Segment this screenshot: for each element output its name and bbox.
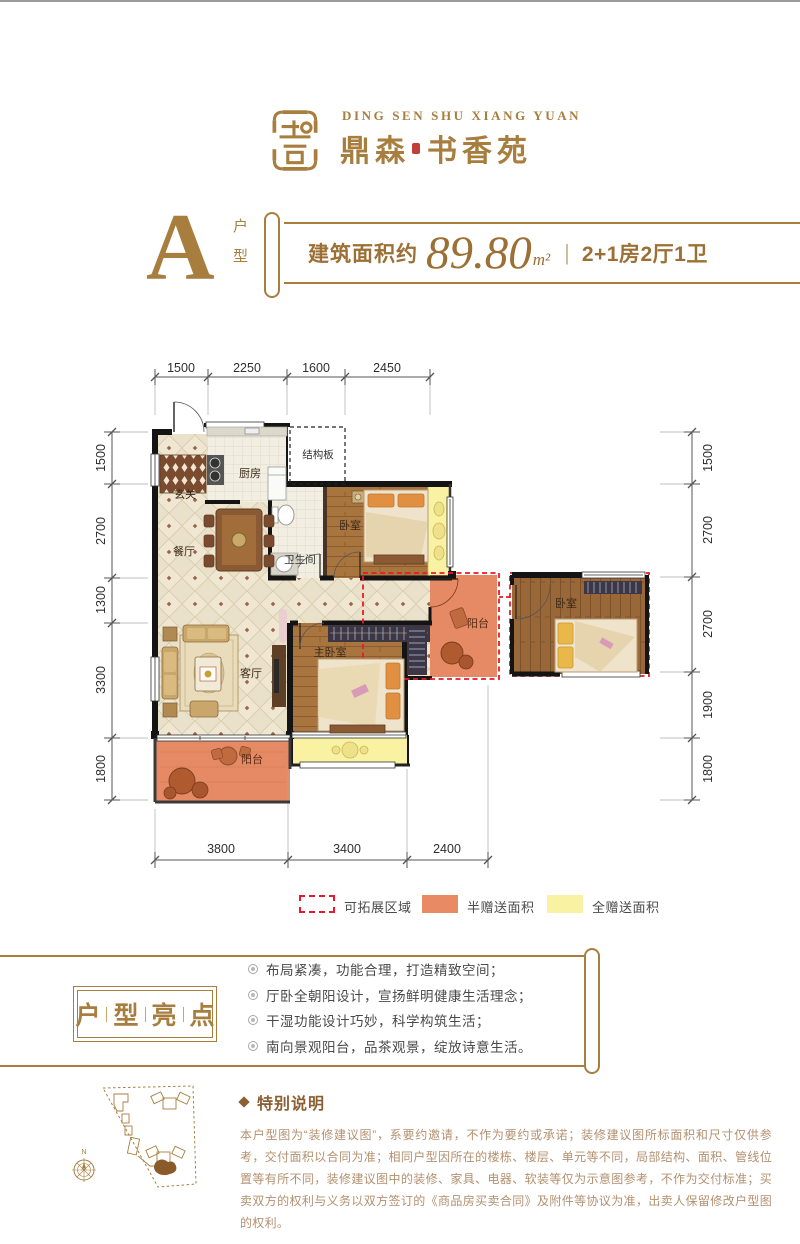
svg-text:厨房: 厨房 [239,467,261,480]
banner-divider: | [564,240,570,266]
svg-text:1800: 1800 [701,755,715,783]
unit-type-char-2: 型 [233,249,248,264]
brand-name-cn-right: 书香苑 [427,126,532,170]
scroll-cap-icon [584,948,600,1074]
unit-letter: A [146,200,215,295]
svg-text:N: N [81,1149,86,1156]
svg-text:1500: 1500 [701,444,715,472]
svg-text:主卧室: 主卧室 [314,645,347,659]
area-prefix: 建筑面积约 [308,238,418,268]
highlight-item: 布局紧凑，功能合理，打造精致空间； [248,959,532,979]
scroll-cap-icon [264,212,280,298]
legend-full-gift-label: 全赠送面积 [592,897,660,916]
bullseye-icon [248,964,258,974]
svg-text:3300: 3300 [94,666,108,694]
highlight-item: 厅卧全朝阳设计，宣扬鲜明健康生活理念； [248,985,532,1005]
highlights-list: 布局紧凑，功能合理，打造精致空间； 厅卧全朝阳设计，宣扬鲜明健康生活理念； 干湿… [248,959,532,1061]
svg-text:阳台: 阳台 [467,616,489,630]
highlighted-building [154,1160,176,1176]
brand-seal-icon [262,102,328,180]
bullseye-icon [248,1041,258,1051]
compass-icon: N [72,1149,96,1182]
svg-text:餐厅: 餐厅 [173,544,195,558]
svg-text:2450: 2450 [373,361,401,375]
legend-expand-label: 可拓展区域 [344,897,412,916]
unit-type-char-1: 户 [233,219,248,234]
legend-half-gift-swatch [422,895,458,913]
svg-text:3400: 3400 [333,842,361,856]
highlight-text: 布局紧凑，功能合理，打造精致空间； [266,959,504,979]
notes-title: 特别说明 [240,1090,325,1114]
unit-type-label: 户 型 [233,219,248,279]
site-map: N [68,1074,233,1224]
highlight-item: 南向景观阳台，品茶观景，绽放诗意生活。 [248,1036,532,1056]
site-buildings [114,1092,190,1166]
floorplan-poster: DING SEN SHU XIANG YUAN 鼎森 书香苑 A 户 型 建筑面… [0,0,800,1244]
floorplan-drawing: 1500 2250 1600 2450 1500 2700 1300 3300 … [0,357,800,882]
highlights-char: 亮 [152,996,177,1032]
highlights-char: 点 [190,996,215,1032]
svg-text:2250: 2250 [233,361,261,375]
entry-mat [160,455,206,493]
notes-title-text: 特别说明 [257,1090,325,1114]
svg-text:2700: 2700 [701,516,715,544]
corridor-floor [157,578,430,623]
legend-half-gift-label: 半赠送面积 [467,897,535,916]
highlights-char: 户 [75,996,100,1032]
brand-name-en: DING SEN SHU XIANG YUAN [342,108,581,124]
brand-name-cn-left: 鼎森 [340,126,410,170]
area-banner: 建筑面积约 89.80 m² | 2+1房2厅1卫 [284,222,800,284]
highlight-item: 干湿功能设计巧妙，科学构筑生活； [248,1010,532,1030]
svg-text:卫生间: 卫生间 [284,553,316,566]
svg-text:2700: 2700 [94,517,108,545]
highlight-text: 干湿功能设计巧妙，科学构筑生活； [266,1010,490,1030]
notes-body: 本户型图为“装修建议图”，系要约邀请，不作为要约或承诺；装修建议图所标面积和尺寸… [240,1124,772,1234]
svg-text:1500: 1500 [167,361,195,375]
bullseye-icon [248,1015,258,1025]
svg-text:结构板: 结构板 [302,448,334,461]
svg-text:1800: 1800 [94,755,108,783]
legend-expand-swatch [299,895,335,913]
svg-text:1600: 1600 [302,361,330,375]
svg-text:3800: 3800 [207,842,235,856]
svg-text:阳台: 阳台 [241,752,263,766]
brand-name-cn: 鼎森 书香苑 [340,126,532,170]
svg-text:2700: 2700 [701,610,715,638]
highlight-text: 南向景观阳台，品茶观景，绽放诗意生活。 [266,1036,532,1056]
area-unit: m² [533,250,550,270]
svg-text:2400: 2400 [433,842,461,856]
svg-text:卧室: 卧室 [555,596,577,610]
brand-dot-icon [412,143,420,154]
svg-text:1900: 1900 [701,691,715,719]
highlights-title-box: 户型亮点 [73,986,217,1042]
svg-text:1500: 1500 [94,444,108,472]
area-value: 89.80 [426,230,532,277]
highlights-char: 型 [113,996,138,1032]
svg-text:客厅: 客厅 [240,666,262,680]
unit-layout: 2+1房2厅1卫 [582,238,708,268]
svg-text:1300: 1300 [94,586,108,614]
bullseye-icon [248,990,258,1000]
legend-full-gift-swatch [547,895,583,913]
diamond-icon [238,1096,249,1107]
site-boundary [103,1086,196,1187]
svg-text:玄关: 玄关 [174,487,196,501]
highlight-text: 厅卧全朝阳设计，宣扬鲜明健康生活理念； [266,985,532,1005]
svg-text:卧室: 卧室 [339,518,361,532]
